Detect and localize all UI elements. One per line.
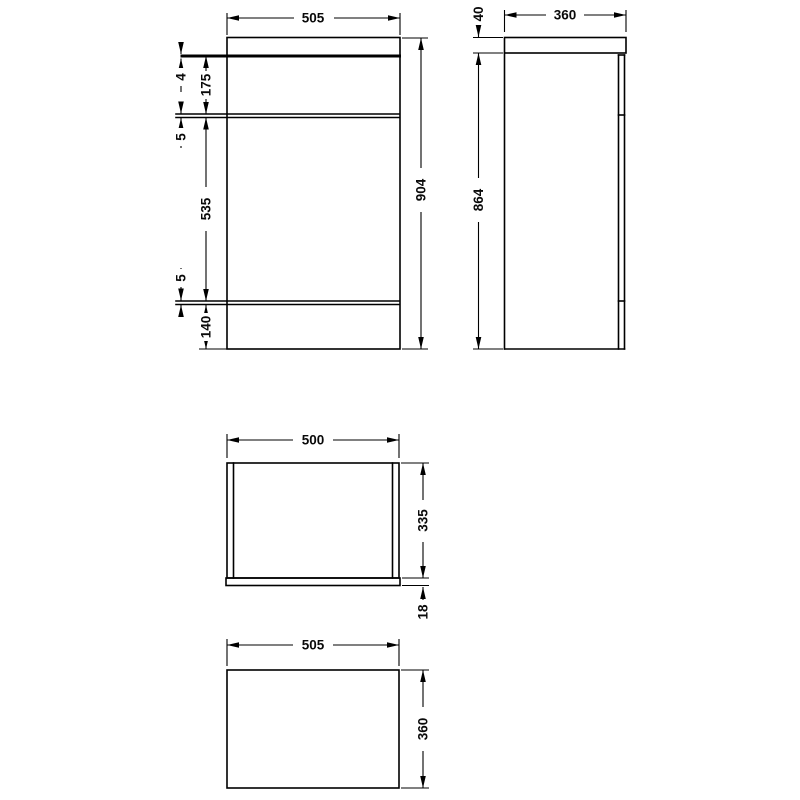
technical-drawing: 505 904 4 175 5 535 5 140 [0,0,800,800]
cabinet-height-label: 864 [471,188,486,211]
carcass-plan-view: 500 335 18 [226,432,431,620]
lip-label: 4 [174,73,189,81]
front-outline [227,38,400,350]
side-view: 360 40 864 [470,6,626,349]
side-depth-label: 360 [554,8,577,23]
worktop-outline [227,670,399,788]
worktop-thickness-label: 40 [471,6,486,21]
lower-gap-label: 5 [174,274,189,282]
carcass-front-panel [226,578,400,586]
worktop-width-label: 505 [302,638,325,653]
carcass-width-label: 500 [302,433,325,448]
worktop-depth-label: 360 [416,718,431,741]
door-label: 535 [199,197,214,220]
front-view: 505 904 4 175 5 535 5 140 [174,10,430,349]
front-height-label: 904 [414,178,429,201]
carcass-outline [227,463,399,578]
front-panel-label: 18 [416,604,431,620]
drawing-sheet: 505 904 4 175 5 535 5 140 [0,0,800,800]
upper-gap-label: 5 [174,133,189,141]
worktop-plan-view: 505 360 [227,637,431,788]
front-width-label: 505 [302,11,325,26]
plinth-label: 140 [199,316,214,339]
upper-panel-label: 175 [199,73,214,96]
carcass-depth-label: 335 [416,509,431,532]
side-worktop-outline [505,38,627,54]
